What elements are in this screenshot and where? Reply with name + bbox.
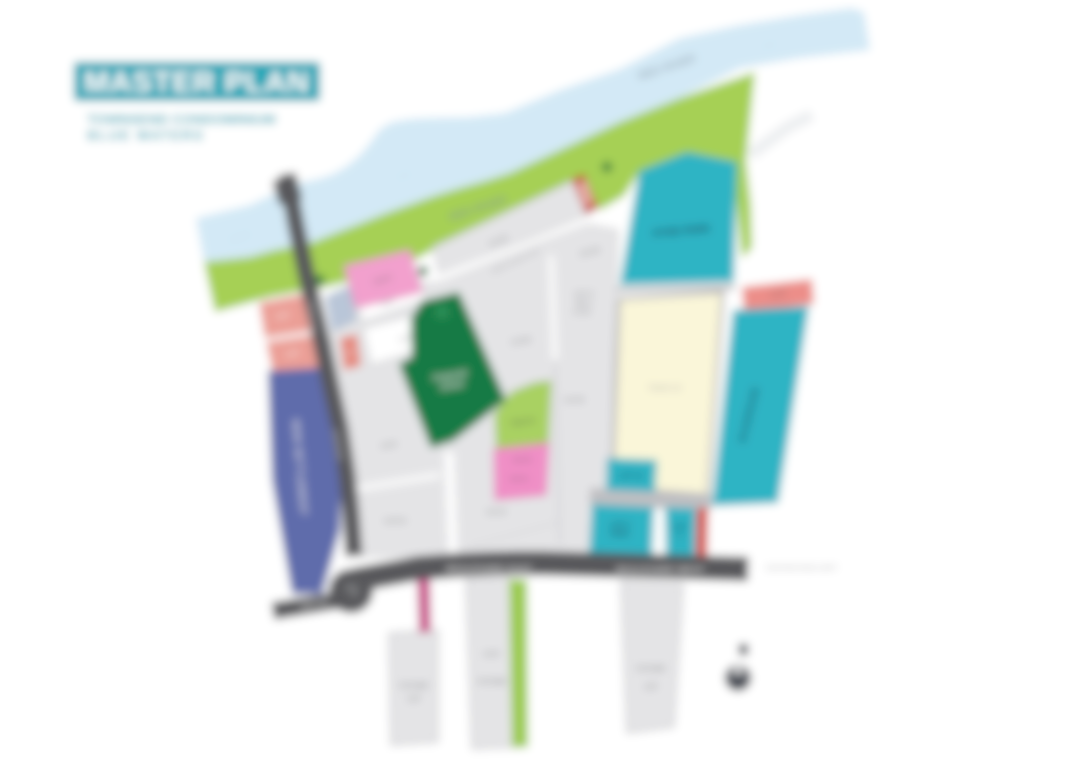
- svg-text:BLUE WATERS: BLUE WATERS: [87, 127, 204, 143]
- svg-text:BLK 2: BLK 2: [576, 301, 593, 307]
- svg-text:TOWNSEND CONDOMINIUM: TOWNSEND CONDOMINIUM: [87, 111, 276, 127]
- svg-text:LOT 2: LOT 2: [610, 522, 630, 529]
- svg-text:FUTURE: FUTURE: [400, 683, 429, 690]
- svg-text:3: 3: [678, 533, 682, 540]
- svg-text:MASTER PLAN: MASTER PLAN: [84, 66, 309, 99]
- svg-text:Lot 8: Lot 8: [483, 651, 499, 658]
- svg-text:PARK: PARK: [610, 531, 629, 538]
- svg-text:LOT 17: LOT 17: [574, 292, 595, 298]
- svg-text:Lot 11: Lot 11: [510, 476, 529, 483]
- svg-text:FUTURE: FUTURE: [637, 666, 666, 673]
- svg-text:LOT 1A: LOT 1A: [619, 473, 644, 480]
- svg-text:R: R: [348, 351, 353, 357]
- svg-text:LOT: LOT: [644, 684, 658, 691]
- svg-text:Lot 12: Lot 12: [512, 457, 532, 464]
- svg-text:LOT: LOT: [673, 524, 688, 531]
- svg-text:EXISTING ROAD 100FT: EXISTING ROAD 100FT: [766, 565, 838, 572]
- svg-text:Lot 14: Lot 14: [486, 509, 506, 516]
- svg-text:LOT: LOT: [407, 696, 421, 703]
- svg-text:2.5 AC: 2.5 AC: [573, 310, 592, 316]
- svg-text:FUTURE: FUTURE: [478, 679, 507, 686]
- svg-text:Lot 5 A: Lot 5 A: [384, 518, 406, 525]
- svg-text:BOULEVARD WEST: BOULEVARD WEST: [617, 566, 705, 575]
- svg-text:Lot 16: Lot 16: [564, 397, 584, 404]
- svg-text:Future Lot: Future Lot: [649, 385, 681, 392]
- svg-text:BOULEVARD EAST: BOULEVARD EAST: [447, 565, 533, 574]
